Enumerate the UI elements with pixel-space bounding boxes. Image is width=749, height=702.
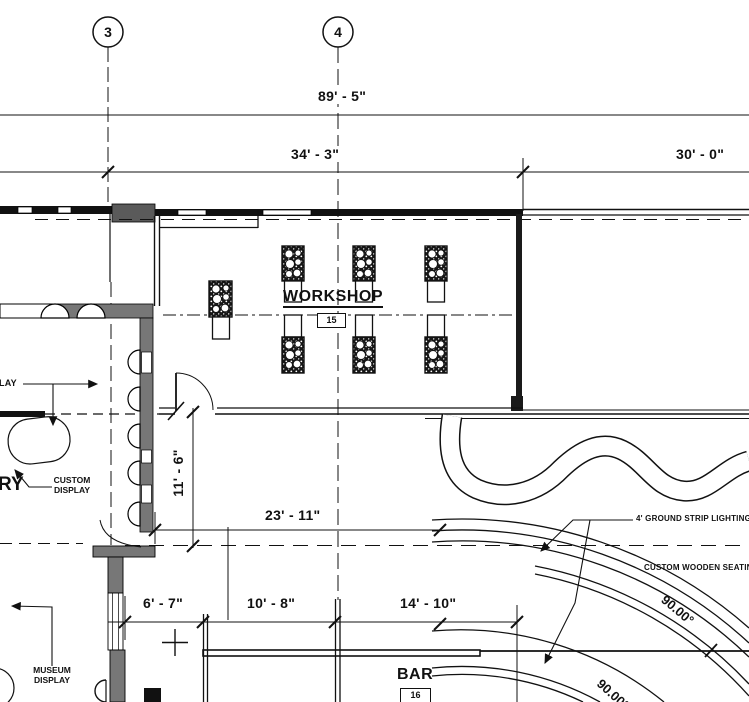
dim-overall: 89' - 5" [316,88,368,104]
workshop-table [425,246,447,302]
room-tag-workshop: 15 [317,313,346,328]
museum-display-label: MUSEUM DISPLAY [28,666,76,685]
ground-strip-leader [545,520,590,663]
bar-dimension-line [108,527,523,702]
custom-display-fixture [6,414,73,466]
bar-arc [535,566,749,684]
floor-plan-sheet: 3 4 89' - 5" 34' - 3" 30' - 0" 11' - 6" … [0,0,749,702]
grid-bubble-4-label: 4 [323,24,353,40]
workshop-table [353,315,375,373]
dim-workshop-depth: 11' - 6" [170,426,186,520]
centerline-cross [162,629,188,656]
bar-arc [432,541,749,657]
ground-strip-lighting-note: 4' GROUND STRIP LIGHTING [636,514,749,523]
display-alcove [128,502,140,526]
round-display [0,668,14,702]
display-label-partial: LAY [0,378,17,388]
bar-arc [432,530,749,643]
workshop-tables [209,246,447,373]
workshop-table [282,315,304,373]
dim-bay-30: 30' - 0" [674,146,726,162]
room-tag-bar: 16 [400,688,431,702]
bar-walls [203,599,749,702]
dim-bar-seg-1: 6' - 7" [141,595,185,611]
dim-bar-seg-2: 10' - 8" [245,595,297,611]
plan-linework [0,0,749,702]
serpentine-bench [450,416,749,495]
room-label-workshop: WORKSHOP [283,288,383,308]
grid-bubble-3-label: 3 [93,24,123,40]
custom-wooden-seating-note: CUSTOM WOODEN SEATING [644,563,749,572]
display-alcove [128,350,140,374]
leader-arrows [12,384,633,666]
display-alcove [95,680,106,702]
gallery-walls [0,304,161,702]
museum-display-leader [12,606,52,666]
display-alcove [128,424,140,448]
room-label-bar: BAR [397,666,433,684]
display-alcove [128,387,140,411]
bar-arc [432,674,583,702]
dim-bar-seg-3: 14' - 10" [398,595,458,611]
display-alcove [128,461,140,485]
top-walls [0,204,749,228]
room-label-gallery-partial: RY [0,474,24,496]
bar-arc [535,574,749,696]
custom-display-label: CUSTOM DISPLAY [50,476,94,495]
dim-corridor: 23' - 11" [263,507,322,523]
workshop-table [209,281,232,339]
bar-arc [432,666,600,702]
dimension-lines-top [0,115,749,211]
grid-line-3 [108,47,111,545]
bar-arc [432,519,749,628]
workshop-table [425,315,447,373]
dim-bay-34: 34' - 3" [289,146,341,162]
bar-seating-arcs [432,519,749,702]
